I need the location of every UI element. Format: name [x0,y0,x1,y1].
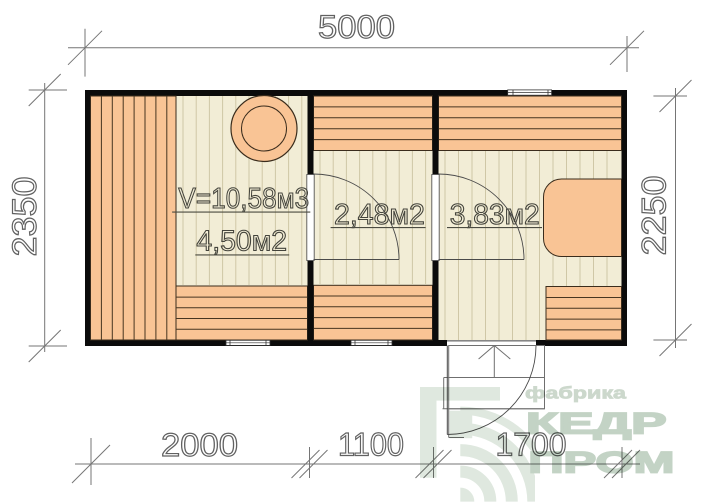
svg-text:2000: 2000 [161,427,238,463]
svg-text:4,50м2: 4,50м2 [196,226,287,258]
svg-text:КЕДР: КЕДР [526,407,667,440]
svg-text:5000: 5000 [318,9,395,45]
svg-text:V=10,58м3: V=10,58м3 [178,183,309,215]
svg-text:2,48м2: 2,48м2 [334,199,425,231]
svg-text:2250: 2250 [636,176,674,256]
svg-text:2350: 2350 [6,177,44,257]
svg-text:1100: 1100 [338,427,404,463]
svg-text:3,83м2: 3,83м2 [450,199,540,231]
svg-text:фабрика: фабрика [525,384,627,403]
svg-text:ПРОМ: ПРОМ [528,447,674,480]
